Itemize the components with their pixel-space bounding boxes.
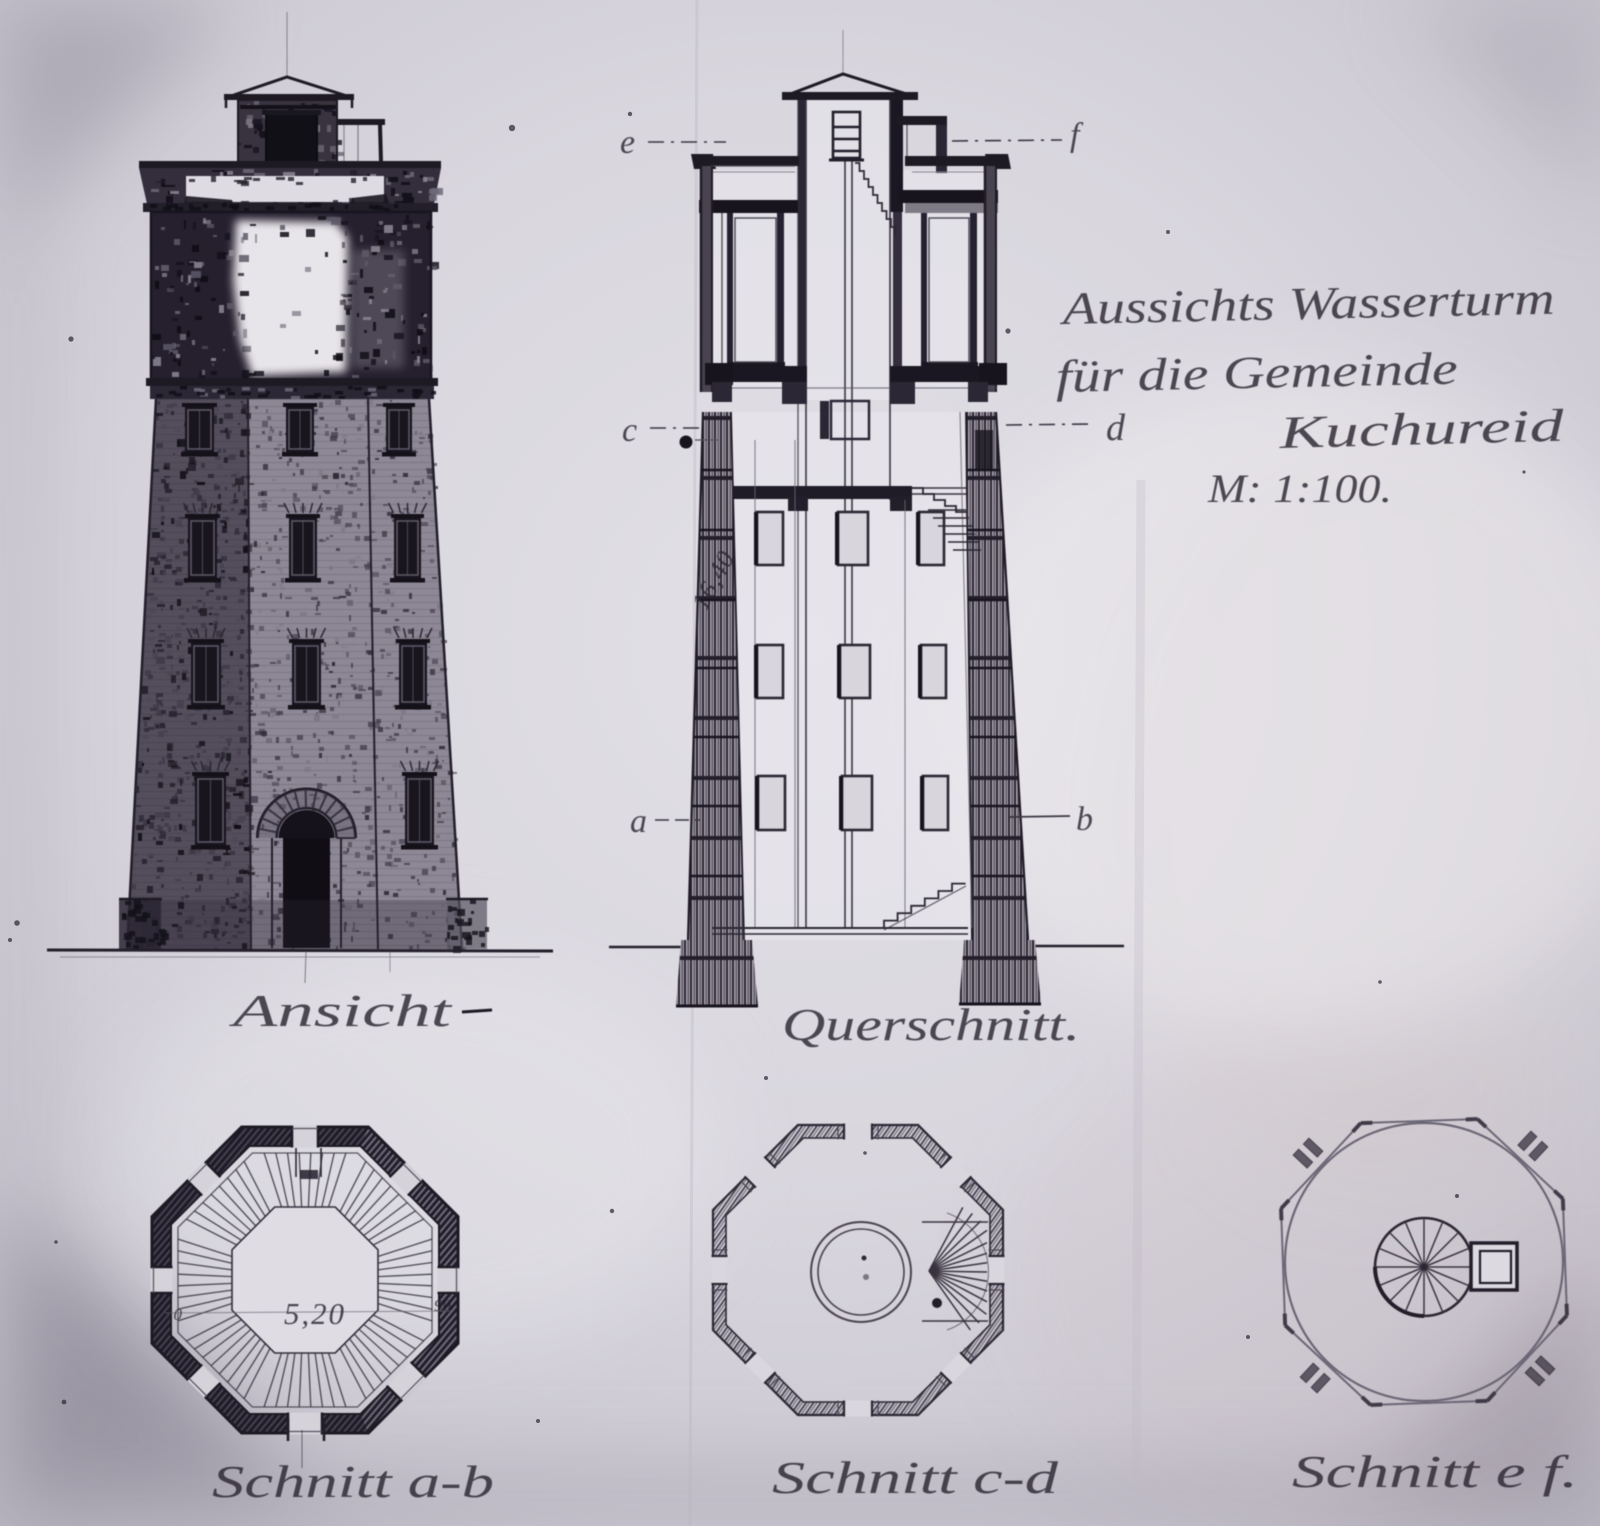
svg-text:M: 1:100.: M: 1:100.	[1207, 466, 1392, 511]
svg-text:d: d	[1106, 407, 1126, 449]
svg-text:Aussichts Wasserturm: Aussichts Wasserturm	[1058, 273, 1555, 334]
svg-text:für die Gemeinde: für die Gemeinde	[1055, 343, 1458, 402]
svg-text:Schnitt a-b: Schnitt a-b	[212, 1457, 494, 1507]
svg-text:b: b	[1076, 801, 1093, 838]
svg-text:90: 90	[434, 1296, 452, 1315]
svg-text:Kuchureid: Kuchureid	[1277, 400, 1565, 458]
svg-text:10: 10	[165, 1305, 183, 1324]
svg-text:e: e	[620, 124, 635, 161]
svg-text:Querschnitt.: Querschnitt.	[782, 999, 1080, 1050]
svg-text:c: c	[622, 412, 637, 449]
svg-text:Schnitt c-d: Schnitt c-d	[772, 1453, 1059, 1503]
svg-text:Ansicht: Ansicht	[228, 985, 453, 1036]
svg-text:Schnitt e f.: Schnitt e f.	[1292, 1447, 1578, 1497]
svg-text:5,20: 5,20	[284, 1296, 345, 1331]
svg-text:a: a	[630, 803, 647, 840]
